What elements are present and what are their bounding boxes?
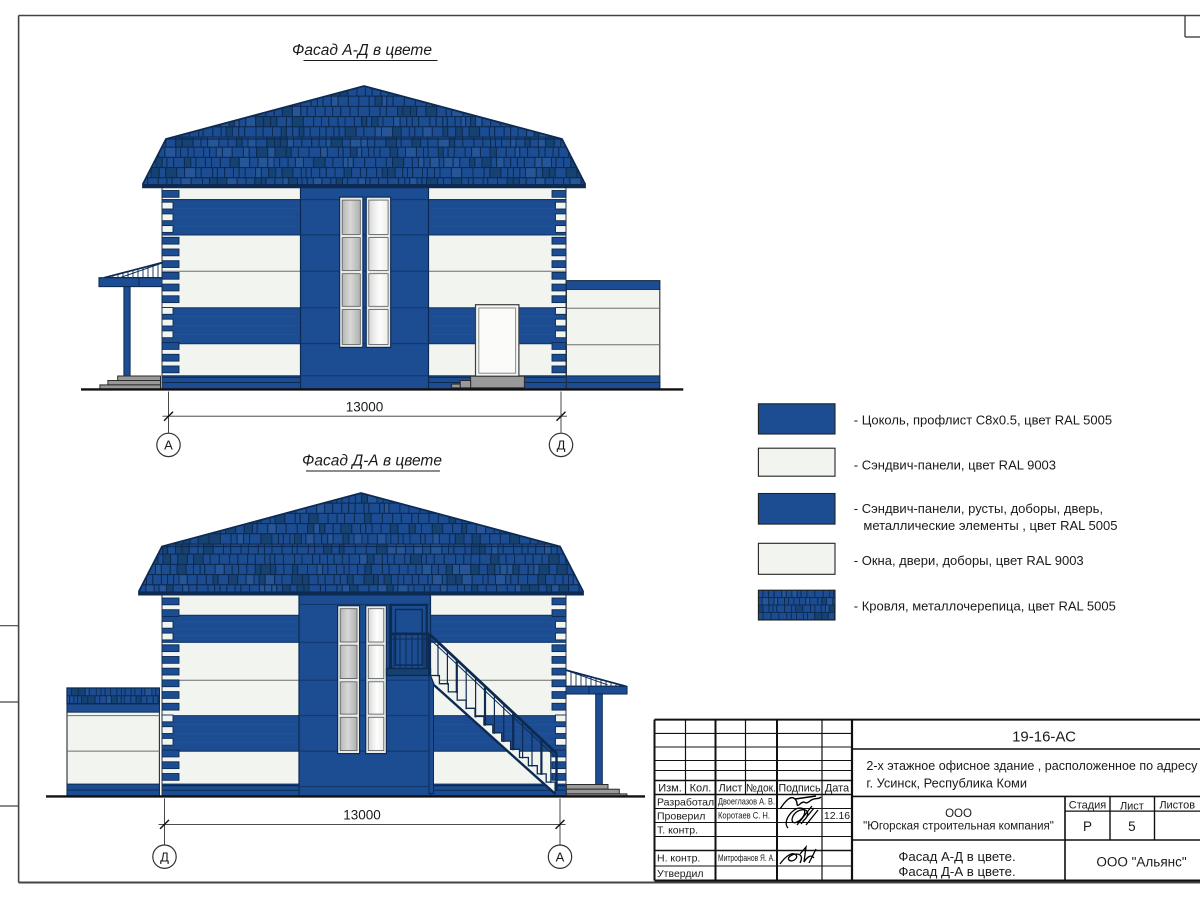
svg-text:Фасад А-Д в цвете.: Фасад А-Д в цвете. bbox=[898, 849, 1015, 864]
svg-text:Р: Р bbox=[1083, 819, 1092, 834]
svg-text:А: А bbox=[164, 438, 173, 453]
svg-text:- Кровля, металлочерепица, цве: - Кровля, металлочерепица, цвет RAL 5005 bbox=[854, 599, 1116, 614]
svg-text:Фасад Д-А в цвете.: Фасад Д-А в цвете. bbox=[898, 864, 1015, 879]
svg-text:12.16: 12.16 bbox=[824, 810, 850, 822]
svg-text:- Окна, двери, доборы, цвет RA: - Окна, двери, доборы, цвет RAL 9003 bbox=[854, 553, 1084, 568]
svg-text:Изм.: Изм. bbox=[658, 783, 682, 795]
svg-text:Разработал: Разработал bbox=[657, 797, 714, 809]
svg-text:"Югорская строительная компани: "Югорская строительная компания" bbox=[863, 821, 1054, 833]
svg-text:ООО: ООО bbox=[945, 808, 972, 820]
svg-text:г. Усинск, Республика Коми: г. Усинск, Республика Коми bbox=[866, 776, 1027, 791]
svg-text:Н. контр.: Н. контр. bbox=[657, 853, 700, 865]
svg-text:2-х этажное офисное здание , р: 2-х этажное офисное здание , расположенн… bbox=[866, 758, 1198, 773]
svg-text:Фасад Д-А в цвете: Фасад Д-А в цвете bbox=[302, 453, 442, 470]
svg-text:Проверил: Проверил bbox=[657, 811, 705, 823]
svg-text:Дата: Дата bbox=[825, 783, 850, 795]
svg-text:Фасад А-Д в цвете: Фасад А-Д в цвете bbox=[292, 42, 432, 59]
svg-text:5: 5 bbox=[1128, 819, 1136, 834]
svg-text:- Цоколь, профлист С8х0.5, цве: - Цоколь, профлист С8х0.5, цвет RAL 5005 bbox=[854, 413, 1112, 428]
svg-text:Утвердил: Утвердил bbox=[657, 868, 704, 880]
svg-text:Двоеглазов А. В.: Двоеглазов А. В. bbox=[718, 797, 775, 807]
svg-text:13000: 13000 bbox=[343, 808, 381, 823]
svg-text:Митрофанов Я. А.: Митрофанов Я. А. bbox=[718, 853, 775, 863]
svg-text:- Сэндвич-панели, русты, добор: - Сэндвич-панели, русты, доборы, дверь, bbox=[854, 501, 1103, 516]
svg-text:Т. контр.: Т. контр. bbox=[657, 825, 698, 837]
svg-text:Лист: Лист bbox=[719, 783, 743, 795]
svg-text:№док.: №док. bbox=[746, 783, 776, 795]
svg-text:А: А bbox=[556, 849, 565, 864]
svg-text:металлические элементы , цвет: металлические элементы , цвет RAL 5005 bbox=[863, 518, 1117, 533]
svg-text:Коротаев С. Н.: Коротаев С. Н. bbox=[718, 811, 770, 821]
svg-text:- Сэндвич-панели, цвет RAL 900: - Сэндвич-панели, цвет RAL 9003 bbox=[854, 458, 1056, 473]
svg-text:13000: 13000 bbox=[346, 400, 384, 415]
svg-text:Лист: Лист bbox=[1120, 801, 1144, 813]
svg-text:19-16-АС: 19-16-АС bbox=[1012, 729, 1076, 746]
svg-text:Листов: Листов bbox=[1159, 800, 1195, 812]
svg-text:Стадия: Стадия bbox=[1069, 800, 1107, 812]
svg-text:Д: Д bbox=[160, 849, 169, 864]
svg-text:Подпись: Подпись bbox=[779, 783, 821, 795]
svg-text:ООО "Альянс": ООО "Альянс" bbox=[1096, 855, 1186, 870]
svg-text:Кол.: Кол. bbox=[690, 783, 712, 795]
svg-text:Д: Д bbox=[557, 438, 566, 453]
